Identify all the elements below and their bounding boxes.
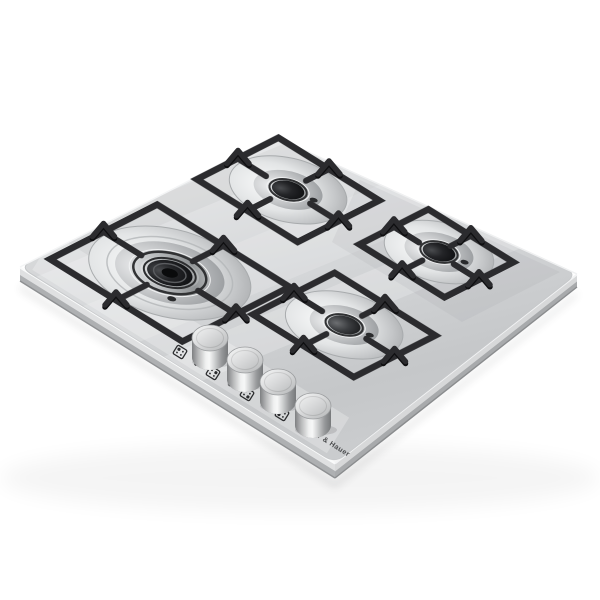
product-image: Günter & Hauer	[0, 0, 600, 600]
gas-hob: Günter & Hauer	[0, 12, 600, 478]
gas-hob-photo: Günter & Hauer	[0, 0, 600, 600]
